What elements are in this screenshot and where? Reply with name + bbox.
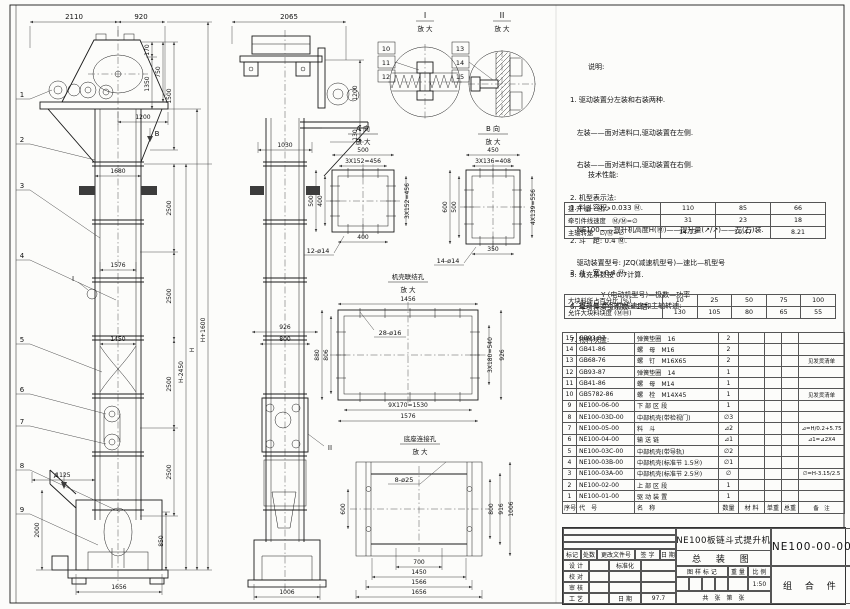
dim-side-1200: 1200 [352,85,359,100]
date-value: 97.7 [641,593,676,604]
dim-2500-4: 2500 [166,464,173,479]
cj-dim-880: 880 [314,349,321,361]
balloon-12: 12 [382,73,390,81]
dim-2500-1: 2500 [166,200,173,215]
table-row: 5NE100-03C-00中部机壳(带导轨)∅2 [563,445,845,456]
rev-label-mark: 标记 [563,549,581,560]
base-joint-scale: 放 大 [412,447,428,456]
view-b-dim-l1: 600 [442,201,449,213]
table-row: 4NE100-03B-00中部机壳(标准节 1.5Ⓜ)∅1 [563,457,845,468]
view-b-dim-pitch: 3X136=408 [475,158,511,165]
stamp-label: 图 样 标 记 [676,566,728,577]
cj-holes: 28-ø16 [379,329,402,337]
dim-2110: 2110 [65,13,83,21]
view-b-scale: 放 大 [485,137,501,146]
dim-2500-2: 2500 [166,288,173,303]
cj-dim-806: 806 [323,349,330,361]
balloon-15: 15 [456,73,464,81]
casing-joint-scale: 放 大 [400,285,416,294]
detail-ii-title: II [500,11,505,20]
base-joint-title: 底座连接孔 [404,434,437,443]
svg-text:9: 9 [20,506,24,514]
table-row: 提 升 量 Ⓜ/↗1108566 [565,203,826,215]
dim-800: 800 [279,336,291,343]
bom-header-row: 序号代 号 名 称数量 材 料单重 总重备 注 [563,502,845,513]
sheet-info: 共 张 第 张 [676,591,771,604]
svg-text:5: 5 [20,336,24,344]
specs-title: 技术性能: [588,170,842,181]
table-row: 1NE100-01-00驱 动 装 置1 [563,491,845,502]
dim-h-plus-1600: H+1600 [200,317,207,342]
dim-h-minus-2450: H-2450 [178,361,185,383]
detail-marker-ii: II [328,444,332,452]
view-a-dim-top: 500 [357,147,369,154]
svg-text:8: 8 [20,462,24,470]
view-b-dim-b: 350 [487,246,499,253]
view-b-holes: 14-ø14 [437,257,460,265]
staff-standardization: 标准化 [609,560,641,571]
detail-i: I 放 大 10 11 12 [378,11,462,120]
view-b-dim-top: 450 [487,147,499,154]
drawing-number: NE100-00-00 [771,528,850,566]
dim-1656: 1656 [111,584,126,591]
bj-dim-916: 916 [498,503,505,515]
balloon-13: 13 [456,45,464,53]
right-panel: 说明: 1. 驱动装置分左装和右装两种. 左装——面对进料口,驱动装置在左侧. … [562,6,844,603]
balloon-14: 14 [456,59,464,67]
svg-text:4: 4 [20,252,25,260]
cj-dim-1576: 1576 [400,413,415,420]
cj-dim-926: 926 [499,349,506,361]
view-a-holes: 12-ø14 [307,247,330,255]
bj-dim-1006: 1006 [508,501,515,516]
dim-1350: 1350 [144,76,151,91]
table-row: 牵引件线速度 Ⓜ/Ⓜ=∅312318 [565,215,826,227]
notes-title: 说明: [588,62,842,73]
front-view: 2110 920 170 1350 750 1500 1200 B 1680 1… [16,13,212,595]
bj-dim-600: 600 [340,503,347,515]
dim-1680: 1680 [110,168,125,175]
dim-920: 920 [134,13,147,21]
assembly-type: 组 合 件 [771,566,850,604]
view-a-dim-l1: 500 [308,195,315,207]
cj-dim-1530: 9X170=1530 [388,402,428,409]
table-row: 6NE100-04-00输 送 链⊿1⊿1=⊿2X4 [563,434,845,445]
dim-h: H [189,348,196,353]
bj-dim-1566: 1566 [411,579,426,586]
bj-dim-700: 700 [413,559,425,566]
table-row: 10GB5782-86螺 栓 M14X451见发货清单 [563,389,845,400]
date-label: 日 期 [609,593,641,604]
detail-i-scale: 放 大 [417,24,433,33]
dim-170: 170 [144,44,151,56]
dim-850: 850 [158,535,165,547]
cj-dim-1456: 1456 [400,296,415,303]
detail-marker-i: I [72,275,74,283]
drawing-title: 总 装 图 [676,550,771,566]
cj-dim-540: 3X180=540 [487,337,494,373]
detail-ii-scale: 放 大 [494,24,510,33]
lump-size-table: 大块料所占百分比 (%)10255075100允许大块料块度 (ⓂⓂ)13010… [564,294,836,319]
capacity-table: 提 升 量 Ⓜ/↗1108566牵引件线速度 Ⓜ/Ⓜ=∅312318主轴转速 ∅… [564,202,826,239]
view-b: B 向 放 大 450 3X136=408 600 500 4X139=556 … [434,124,537,265]
view-a-dim-b: 400 [357,234,369,241]
table-row: 2NE100-02-00上 部 区 段1 [563,479,845,490]
staff-audit: 审 核 [563,582,589,593]
table-row: 7NE100-05-00料 斗⊿2⊿=H/0.2+5.75 [563,423,845,434]
casing-joint-detail: 机壳联结孔 放 大 1456 28-ø16 880 806 3X180=540 … [314,272,506,421]
casing-joint-title: 机壳联结孔 [392,272,425,281]
detail-ii: II 放 大 13 14 15 [452,11,536,118]
table-row: 8NE100-03D-00中部机壳(带检视门)∅3 [563,412,845,423]
dim-1500: 1500 [166,88,173,103]
bom-table: 15GB93-87弹簧垫圈 16214GB41-86螺 母 M16213GB68… [562,332,844,514]
view-a: A 向 放 大 500 3X152=456 500 400 3X152=456 … [304,124,411,255]
staff-process: 工 艺 [563,593,589,604]
view-a-scale: 放 大 [355,137,371,146]
table-row: 11GB41-86螺 母 M141 [563,378,845,389]
note-line: 左装——面对进料口,驱动装置在左侧. [570,128,842,139]
dim-750: 750 [155,66,162,78]
bj-dim-1450: 1450 [411,569,426,576]
dim-926: 926 [279,324,291,331]
balloon-11: 11 [382,59,390,67]
note-line: 1. 驱动装置分左装和右装两种. [570,95,842,106]
staff-check: 校 对 [563,571,589,582]
table-row: 允许大块料块度 (ⓂⓂ)130105806555 [565,307,836,319]
svg-text:2: 2 [20,136,24,144]
scale-label: 比 例 [748,566,771,577]
dim-2500-3: 2500 [166,376,173,391]
table-row: 15GB93-87弹簧垫圈 162 [563,333,845,344]
view-arrow-a: A [54,472,59,480]
view-a-title: A 向 [356,124,370,133]
table-row: 9NE100-06-00下 部 区 段1 [563,400,845,411]
detail-i-title: I [424,11,426,20]
balloon-10: 10 [382,45,390,53]
dim-2065: 2065 [280,13,298,21]
rev-label-docno: 更改文件号 [597,549,635,560]
rev-label-date: 日 期 [660,549,676,560]
svg-text:7: 7 [20,418,24,426]
title-block: 标记 处数 更改文件号 签 字 日 期 设 计 标准化 校 对 审 核 [562,527,846,605]
bj-dim-800: 800 [488,503,495,515]
side-view: 2065 12 [232,13,368,600]
dim-1030: 1030 [277,142,292,149]
svg-text:3: 3 [20,182,24,190]
bj-holes: 8-ø25 [395,476,414,484]
dim-1450: 1450 [110,336,125,343]
rev-label-sign: 签 字 [635,549,660,560]
table-row: 12GB93-87弹簧垫圈 141 [563,366,845,377]
base-joint-detail: 底座连接孔 放 大 8-ø25 600 800 916 1006 700 145… [340,434,515,599]
view-a-dim-l2: 400 [317,195,324,207]
spec-line: 5. 填充系数按 0.7计算. [570,270,842,281]
rev-label-count: 处数 [581,549,597,560]
table-row: 大块料所占百分比 (%)10255075100 [565,295,836,307]
staff-design: 设 计 [563,560,589,571]
view-a-dim-r: 3X152=456 [404,183,411,219]
dim-1006: 1006 [279,589,294,596]
view-arrow-b: B [155,130,160,138]
view-b-dim-r: 4X139=556 [530,189,537,225]
table-row: 3NE100-03A-00中部机壳(标准节 2.5Ⓜ)∅∅=H-3.15/2.5 [563,468,845,479]
dim-2000: 2000 [34,522,41,537]
dim-1200: 1200 [135,114,150,121]
table-row: 13GB68-76螺 钉 M16X652见发货清单 [563,355,845,366]
view-a-dim-pitch: 3X152=456 [345,158,381,165]
svg-text:6: 6 [20,386,25,394]
table-row: 主轴转速 ∅/Ⓜ=∅14.1310.478.21 [565,227,826,239]
view-b-title: B 向 [486,124,500,133]
view-b-dim-l2: 500 [451,201,458,213]
svg-text:1: 1 [20,91,24,99]
weight-label: 重 量 [728,566,748,577]
scale-value: 1:50 [748,577,771,591]
table-row: 14GB41-86螺 母 M162 [563,344,845,355]
dim-1576: 1576 [110,262,125,269]
drawing-sheet: 2110 920 170 1350 750 1500 1200 B 1680 1… [0,0,850,609]
bj-dim-1656: 1656 [411,589,426,596]
product-name: NE100板链斗式提升机 [676,528,771,550]
